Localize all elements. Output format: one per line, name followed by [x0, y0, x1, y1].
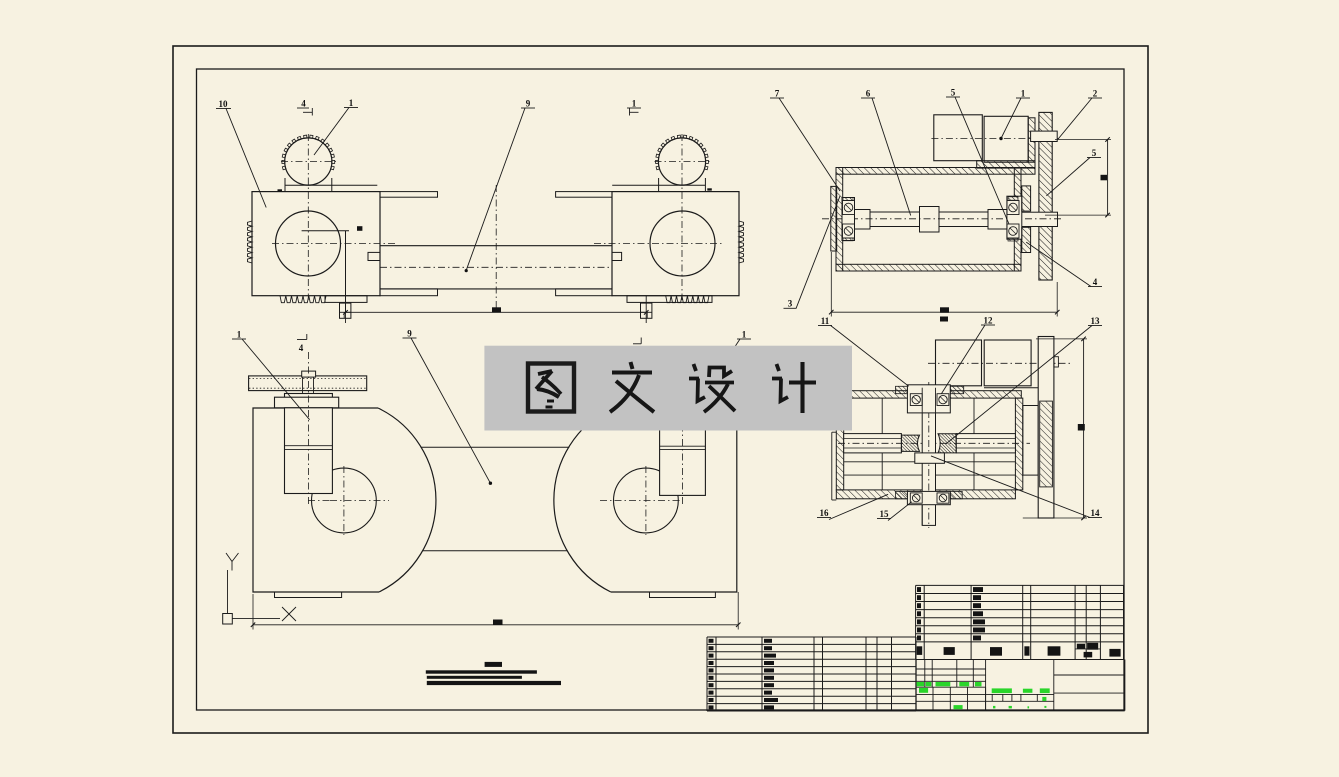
svg-text:7: 7 — [775, 89, 780, 99]
svg-text:13: 13 — [1091, 316, 1101, 326]
svg-text:1: 1 — [237, 330, 242, 340]
svg-text:5: 5 — [1092, 148, 1097, 158]
svg-text:2: 2 — [1093, 89, 1098, 99]
svg-text:1: 1 — [632, 99, 637, 109]
svg-text:16: 16 — [820, 508, 830, 518]
svg-text:4: 4 — [299, 343, 304, 353]
svg-text:6: 6 — [866, 89, 871, 99]
svg-text:1: 1 — [742, 330, 747, 340]
svg-text:11: 11 — [821, 316, 830, 326]
svg-text:9: 9 — [526, 99, 531, 109]
svg-text:15: 15 — [880, 509, 890, 519]
svg-text:3: 3 — [788, 299, 793, 309]
svg-text:1: 1 — [349, 98, 354, 108]
svg-text:5: 5 — [951, 88, 956, 98]
svg-text:12: 12 — [984, 316, 994, 326]
svg-text:9: 9 — [407, 329, 412, 339]
svg-text:10: 10 — [219, 99, 229, 109]
svg-text:4: 4 — [1093, 277, 1098, 287]
svg-text:1: 1 — [1021, 89, 1026, 99]
svg-text:4: 4 — [301, 99, 306, 109]
svg-text:14: 14 — [1091, 508, 1101, 518]
